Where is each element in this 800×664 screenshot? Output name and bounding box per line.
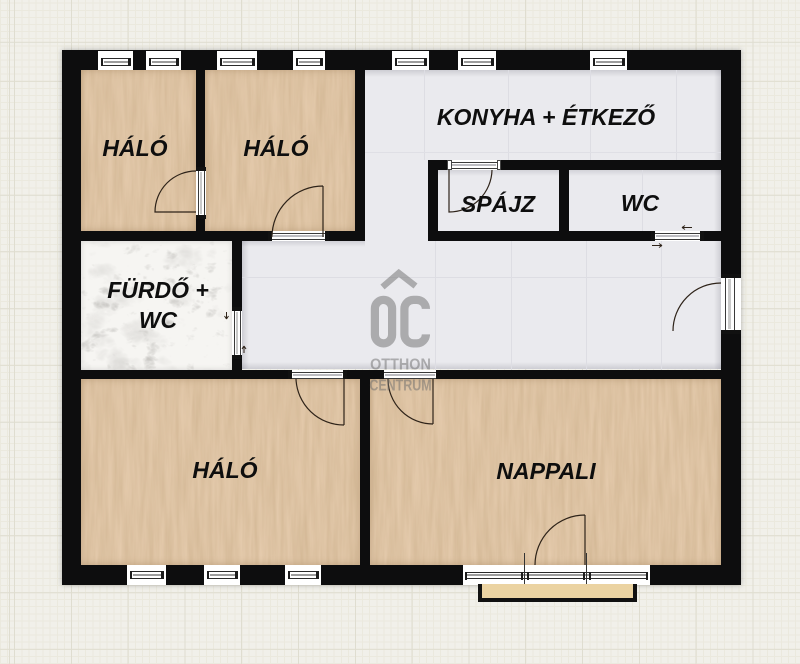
svg-text:CENTRUM: CENTRUM — [369, 377, 431, 395]
svg-text:OTTHON: OTTHON — [370, 356, 431, 374]
